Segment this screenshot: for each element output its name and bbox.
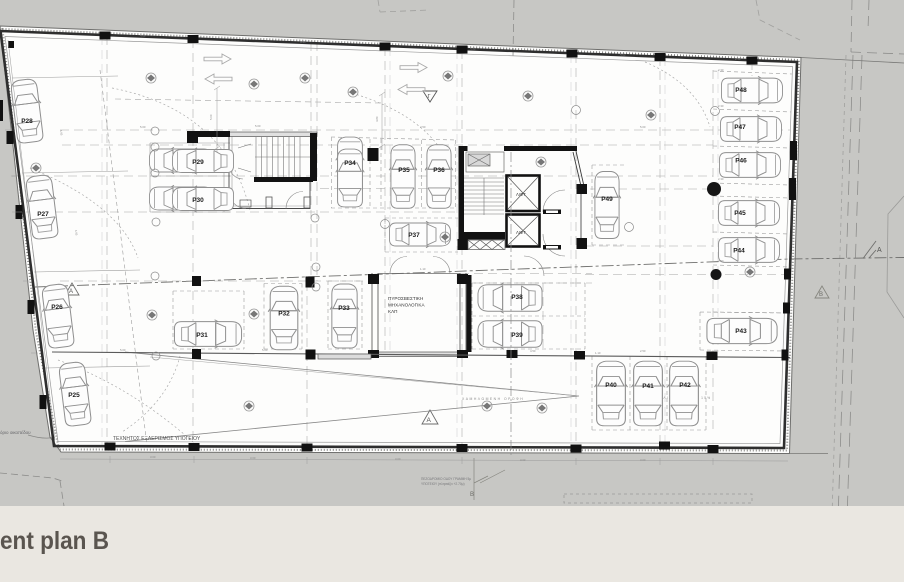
svg-text:ΛΙΦΤ: ΛΙΦΤ: [516, 230, 526, 235]
svg-text:1.10: 1.10: [595, 351, 601, 355]
svg-text:B: B: [819, 292, 823, 298]
svg-text:4.60: 4.60: [140, 34, 146, 38]
svg-text:1.10: 1.10: [420, 267, 426, 271]
svg-text:P37: P37: [408, 232, 420, 239]
svg-text:P33: P33: [338, 305, 350, 312]
svg-text:ent plan B: ent plan B: [0, 527, 109, 555]
svg-text:2.30: 2.30: [718, 177, 724, 181]
svg-text:A: A: [877, 247, 882, 254]
svg-text:4.95: 4.95: [59, 130, 64, 136]
svg-text:P34: P34: [344, 160, 356, 167]
svg-text:4.50: 4.50: [530, 349, 536, 353]
svg-text:P29: P29: [192, 159, 204, 166]
svg-text:2.50: 2.50: [640, 349, 646, 353]
svg-text:ΠΕΖΟΔΡΟΜΙΟ ΟΔΟΥ ΓΡΑΜΜΗ 5μ: ΠΕΖΟΔΡΟΜΙΟ ΟΔΟΥ ΓΡΑΜΜΗ 5μ: [421, 477, 471, 481]
svg-text:P45: P45: [734, 210, 746, 217]
svg-text:P27: P27: [37, 211, 49, 218]
svg-text:P25: P25: [68, 392, 80, 399]
svg-text:P28: P28: [21, 118, 33, 125]
svg-text:2.50: 2.50: [420, 125, 426, 129]
svg-text:P26: P26: [51, 304, 63, 311]
svg-text:ΧΑΜΗΛΩΜΕΝΗ ΟΡΟΦΗ: ΧΑΜΗΛΩΜΕΝΗ ΟΡΟΦΗ: [462, 397, 524, 401]
svg-text:P47: P47: [734, 124, 746, 131]
svg-text:όριο οικοπέδου: όριο οικοπέδου: [0, 429, 31, 435]
svg-text:3.00: 3.00: [250, 456, 256, 460]
svg-text:5.00: 5.00: [209, 114, 213, 120]
svg-text:P48: P48: [735, 87, 747, 94]
svg-text:P43: P43: [735, 328, 747, 335]
svg-text:P44: P44: [733, 248, 745, 255]
svg-text:2.50: 2.50: [735, 57, 741, 61]
svg-text:5.00: 5.00: [120, 348, 126, 352]
svg-text:ΥΠΟΓΕΙΟΥ (πλησιάζει +2.70μ): ΥΠΟΓΕΙΟΥ (πλησιάζει +2.70μ): [421, 482, 465, 486]
svg-text:5.00: 5.00: [262, 348, 268, 352]
svg-text:4.80: 4.80: [375, 116, 379, 122]
svg-text:4.95: 4.95: [300, 40, 306, 44]
svg-text:ΜΗΧΑΝΟΛΟΓΙΚΑ: ΜΗΧΑΝΟΛΟΓΙΚΑ: [388, 303, 425, 308]
svg-text:P31: P31: [196, 332, 208, 339]
svg-text:P42: P42: [679, 382, 691, 389]
svg-text:P32: P32: [278, 311, 290, 318]
svg-text:ΚΛΠ: ΚΛΠ: [388, 309, 397, 314]
svg-text:3.00: 3.00: [150, 455, 156, 459]
svg-text:Γ: Γ: [428, 94, 431, 100]
svg-text:5.00: 5.00: [640, 125, 646, 129]
svg-text:4.60: 4.60: [620, 53, 626, 57]
svg-text:A: A: [69, 289, 73, 295]
svg-text:P40: P40: [605, 382, 617, 389]
svg-text:P35: P35: [398, 167, 410, 174]
svg-text:ΛΙΦΤ: ΛΙΦΤ: [516, 192, 526, 197]
svg-text:B: B: [470, 492, 474, 498]
svg-text:P41: P41: [642, 383, 654, 390]
svg-text:3.00: 3.00: [640, 458, 646, 462]
svg-text:P46: P46: [735, 158, 747, 165]
svg-text:ΠΥΡΟΣΒΕΣΤΙΚΗ: ΠΥΡΟΣΒΕΣΤΙΚΗ: [388, 296, 423, 301]
svg-text:ΤΕΧΝΗΤΟΣ ΕΞΑΕΡΙΣΜΟΣ ΥΠΟΓΕΙΟΥ: ΤΕΧΝΗΤΟΣ ΕΞΑΕΡΙΣΜΟΣ ΥΠΟΓΕΙΟΥ: [113, 436, 201, 442]
svg-text:P30: P30: [192, 197, 204, 204]
svg-text:4.95: 4.95: [470, 47, 476, 51]
svg-text:P36: P36: [433, 167, 445, 174]
svg-text:P39: P39: [511, 332, 523, 339]
svg-text:3.00: 3.00: [395, 457, 401, 461]
svg-text:A: A: [427, 417, 432, 424]
svg-text:P49: P49: [601, 196, 613, 203]
svg-text:5.00: 5.00: [255, 124, 261, 128]
svg-text:P38: P38: [511, 294, 523, 301]
svg-text:2.30: 2.30: [718, 68, 724, 72]
svg-text:2.30: 2.30: [718, 104, 724, 108]
svg-text:5.00: 5.00: [140, 125, 146, 129]
svg-text:3.00: 3.00: [520, 458, 526, 462]
svg-text:4.95: 4.95: [74, 230, 79, 236]
svg-text:2.30: 2.30: [718, 259, 724, 263]
